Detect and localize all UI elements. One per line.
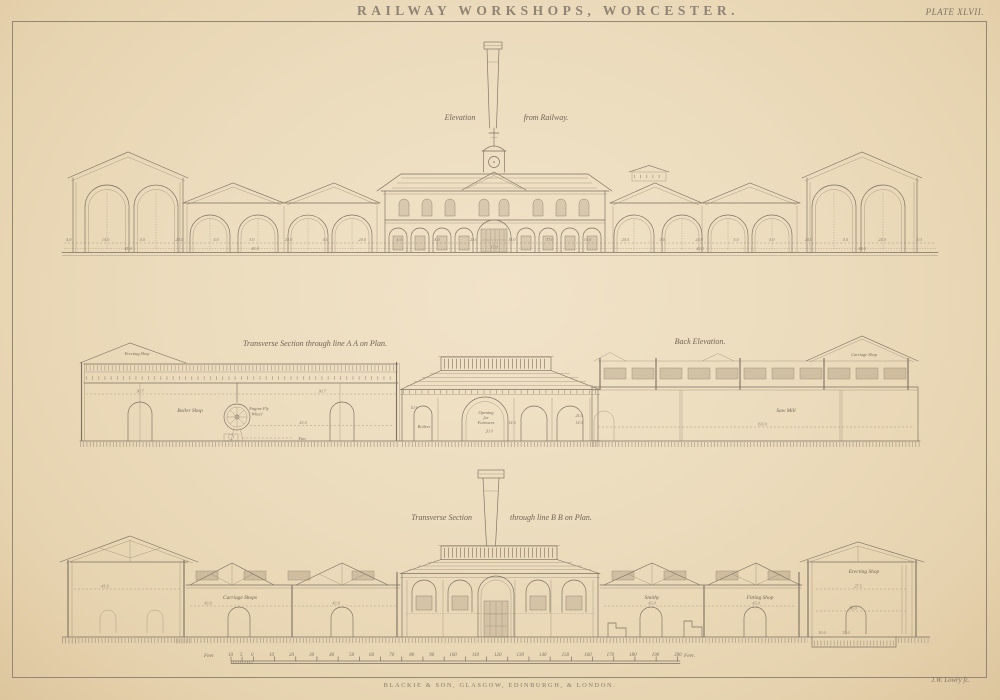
dim-label: 4.0 [843, 237, 848, 242]
scale-bar-ticks: 1020304050607080901001101201301401501601… [269, 653, 682, 658]
scale-tick-label: 150 [562, 653, 570, 658]
fan-machine [224, 434, 294, 441]
label-engine-fly-wheel-2: Wheel [252, 412, 264, 417]
section-bb-ground-line [62, 637, 930, 641]
scale-tick-label: 140 [539, 653, 547, 658]
forge-hearth [608, 623, 626, 637]
caption-section-aa: Transverse Section through line A A on P… [243, 339, 387, 348]
erecting-boiler-shop-section: Erecting Shop 30.7 30.7 Boiler Shop [80, 343, 400, 445]
carriage-shops-section: Carriage Shops 43.0 43.0 [186, 563, 400, 637]
back-elevation: Back Elevation. Carriage Shop [592, 336, 920, 445]
dim-label: 24.0 [358, 237, 366, 242]
scale-sub-label: 10 [228, 653, 233, 658]
clerestory-windows [604, 368, 906, 379]
dim-label: 193.0 [757, 422, 767, 427]
label-boiler-shop: Boiler Shop [177, 408, 203, 414]
publisher-imprint: BLACKIE & SON, GLASGOW, EDINBURGH, & LON… [0, 682, 1000, 689]
engraving-plate: { "plate": { "title": "RAILWAY WORKSHOPS… [0, 0, 1000, 700]
dim-label: 24.0 [285, 237, 293, 242]
scale-tick-label: 90 [429, 653, 434, 658]
scale-tick-label: 40 [329, 653, 334, 658]
dim-label: 4.0 [213, 237, 218, 242]
boiler-house-section: Boilers Opening for Furnaces 10.6 14.0 2… [400, 357, 600, 445]
inspection-pit: 10.0 33.0 [812, 630, 896, 647]
elevation-from-railway: Elevation from Railway. [62, 42, 938, 256]
scale-tick-label: 170 [607, 653, 615, 658]
scale-tick-label: 120 [494, 653, 502, 658]
caption-section-bb-left: Transverse Section [411, 513, 472, 522]
left-workshop-bays-elevation [183, 183, 380, 252]
dim-label: 20.0 [485, 429, 493, 434]
upper-arched-windows [399, 199, 589, 216]
scale-tick-label: 20 [289, 653, 294, 658]
chimney [484, 42, 502, 128]
dim-label: 37.0 [546, 237, 554, 242]
caption-back-elevation: Back Elevation. [675, 337, 726, 346]
scale-tick-label: 80 [409, 653, 414, 658]
dim-label: 24.0 [695, 237, 703, 242]
label-fan: Fan [297, 436, 306, 441]
label-carriage-shop: Carriage Shop [851, 352, 878, 357]
scale-tick-label: 10 [269, 653, 274, 658]
dim-label: 30.7 [318, 389, 326, 394]
scale-bar-suffix: Feet. [684, 653, 695, 659]
dim-label: 5.0 [769, 237, 774, 242]
label-saw-mill: Saw Mill [776, 408, 796, 414]
dim-label: 3.0 [733, 237, 738, 242]
elevation-dimension-strip: 4.014.04.024.04.03.024.04.024.04.014.024… [66, 237, 922, 242]
plate-drawing: Elevation from Railway. [0, 0, 1000, 700]
scale-tick-label: 200 [674, 653, 682, 658]
dim-label: 14.0 [575, 420, 583, 425]
dim-label: 14.0 [508, 237, 516, 242]
label-erecting-shop: Erecting Shop [124, 351, 151, 356]
roof-louvre-vent [629, 166, 669, 182]
dim-label: 17.0 [490, 245, 498, 250]
dim-label: 3.0 [916, 237, 921, 242]
scale-tick-label: 110 [472, 653, 479, 658]
dim-label: 24.0 [575, 413, 583, 418]
forge-hearth [684, 621, 702, 637]
scale-bar-prefix: Feet [204, 653, 214, 659]
scale-tick-label: 180 [629, 653, 637, 658]
dim-label: 14.0 [102, 237, 110, 242]
erecting-shop-section: Erecting Shop 27.5 56.0 10.0 33.0 [800, 542, 924, 647]
caption-section-bb-right: through line B B on Plan. [510, 513, 592, 522]
central-building-elevation [377, 42, 612, 252]
dim-label: 24.0 [622, 237, 630, 242]
dim-label: 40.0 [251, 246, 259, 251]
label-boilers: Boilers [418, 424, 431, 429]
scale-sub-label: 5 [240, 653, 243, 658]
scale-tick-label: 100 [449, 653, 457, 658]
dim-label: 33.0 [842, 630, 850, 635]
engine-flywheel [224, 404, 250, 441]
dim-label: 14.0 [584, 237, 592, 242]
dim-label: 45.4 [124, 246, 131, 251]
dim-label: 30.7 [136, 389, 144, 394]
caption-elevation-left: Elevation [444, 113, 476, 122]
dim-label: 44.0 [858, 246, 866, 251]
caption-elevation-right: from Railway. [524, 113, 569, 122]
clock-turret [482, 128, 506, 172]
pediment [462, 172, 526, 190]
dim-label: 4.0 [323, 237, 328, 242]
dim-label: 40.0 [696, 246, 704, 251]
dim-label: 24.0 [878, 237, 886, 242]
dim-label: 10.0 [818, 630, 826, 635]
dim-label: 27.5 [854, 584, 861, 589]
engraver-signature: J.W. Lowry fc. [931, 677, 970, 684]
label-carriage-shops: Carriage Shops [223, 595, 257, 601]
dim-label: 10.6 [410, 405, 418, 410]
scale-tick-label: 50 [349, 653, 354, 658]
label-furnace-opening-3: Furnaces [477, 420, 495, 425]
dim-label: 14.0 [508, 420, 516, 425]
dim-label: 4.0 [140, 237, 145, 242]
dim-label: 43.0 [332, 601, 340, 606]
engine-house-door [478, 576, 514, 637]
scale-tick-label: 30 [309, 653, 314, 658]
dim-label: 43.0 [648, 601, 656, 606]
scale-bar [231, 657, 680, 664]
dim-label: 43.0 [752, 601, 760, 606]
dim-label: 24.0 [470, 237, 478, 242]
dim-label: 43.0 [204, 601, 212, 606]
dim-label: 24.0 [805, 237, 813, 242]
scale-tick-label: 60 [369, 653, 374, 658]
scale-tick-label: 130 [517, 653, 525, 658]
scale-tick-label: 190 [652, 653, 660, 658]
carriage-shop-gable: Carriage Shop [806, 336, 918, 362]
scale-tick-label: 160 [584, 653, 592, 658]
dim-label: 4.0 [396, 237, 401, 242]
dim-label: 43.0 [299, 420, 307, 425]
smithy-fitting-section: Smithy Fitting Shop 43.0 43.0 [600, 563, 802, 637]
scale-tick-label: 70 [389, 653, 394, 658]
left-pavilion-section: 41.6 [60, 536, 198, 641]
dim-label: 3.0 [249, 237, 254, 242]
dim-label: 4.0 [66, 237, 71, 242]
engine-house-section [400, 546, 600, 638]
section-bb: Transverse Section through line B B on P… [60, 470, 930, 647]
label-erecting-shop: Erecting Shop [848, 569, 880, 575]
label-engine-fly-wheel: Engine Fly [248, 406, 268, 411]
scale-sub-label: 0 [251, 653, 254, 658]
dim-label: 41.6 [101, 584, 109, 589]
dim-label: 24.0 [175, 237, 183, 242]
chimney-section [478, 470, 504, 546]
dim-label: 4.0 [660, 237, 665, 242]
dim-label: 14.0 [432, 237, 440, 242]
section-aa: Transverse Section through line A A on P… [80, 339, 600, 445]
